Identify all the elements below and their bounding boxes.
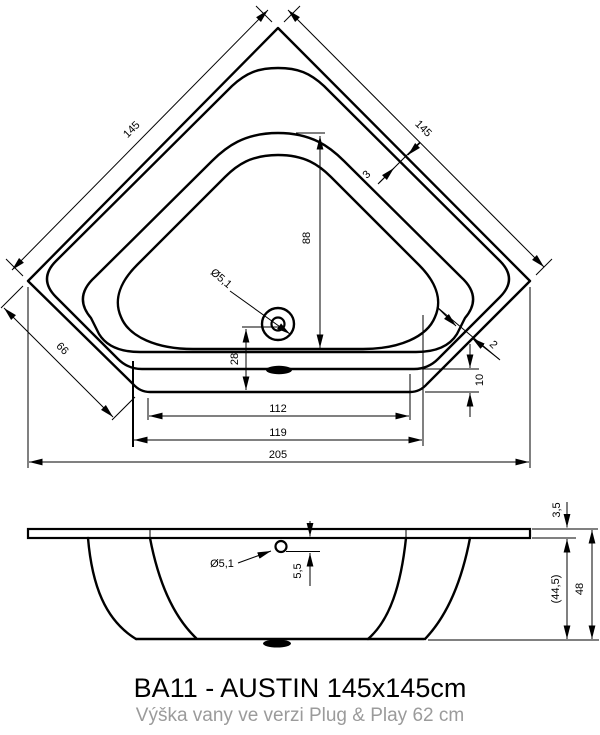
drain-leader <box>238 551 271 563</box>
top-view-dimensions: 145 145 66 3 2 10 88 28 <box>1 6 552 468</box>
dim-48-label: 48 <box>574 583 586 595</box>
top-view <box>28 28 530 447</box>
dim-66-label: 66 <box>54 340 71 357</box>
dim-119-label: 119 <box>269 427 287 439</box>
dim-arrow <box>438 308 456 326</box>
dim-44-5-label: (44,5) <box>550 575 562 604</box>
mid-wall-inner <box>425 538 470 639</box>
dim-88-label: 88 <box>301 232 313 244</box>
dim-5-5-label: 5,5 <box>292 563 304 578</box>
dim-line-145-right <box>288 10 544 267</box>
technical-drawing-page: 145 145 66 3 2 10 88 28 <box>0 0 600 735</box>
dim-205-label: 205 <box>269 449 287 461</box>
drain-outlet-mark <box>263 640 291 648</box>
drain-leader <box>230 291 290 334</box>
drain-hole-section <box>276 541 287 552</box>
basin-floor-contour <box>118 155 438 349</box>
side-view: Ø5,1 5,5 3,5 (44,5) 48 <box>28 502 599 648</box>
bathtub-technical-drawing: 145 145 66 3 2 10 88 28 <box>0 0 600 735</box>
dim-arrow <box>408 143 420 155</box>
drain-diameter-label: Ø5,1 <box>208 266 234 291</box>
left-wall-outer <box>88 538 136 639</box>
footer: BA11 - AUSTIN 145x145cm Výška vany ve ve… <box>134 673 467 726</box>
dim-145-left-label: 145 <box>121 119 142 140</box>
rim-inner-edge-contour <box>47 68 509 369</box>
dim-145-right-label: 145 <box>412 118 433 139</box>
side-drain-diameter-label: Ø5,1 <box>210 558 234 570</box>
dim-28-label: 28 <box>229 353 241 365</box>
overflow-mark <box>266 366 292 374</box>
mid-wall-outer <box>368 538 406 639</box>
dim-2-label: 2 <box>487 338 500 351</box>
dim-arrow <box>379 168 394 183</box>
left-wall-inner <box>150 538 196 638</box>
dim-112-label: 112 <box>269 403 287 415</box>
dim-line-66 <box>4 308 113 417</box>
rim-bar <box>28 529 530 538</box>
product-title: BA11 - AUSTIN 145x145cm <box>134 673 467 703</box>
product-subtitle: Výška vany ve verzi Plug & Play 62 cm <box>136 705 464 726</box>
dim-3-5-label: 3,5 <box>551 502 563 517</box>
ext-line <box>112 397 135 420</box>
ext-line <box>1 286 23 308</box>
drain-flange-circle <box>262 308 294 340</box>
dim-10-label: 10 <box>474 374 486 386</box>
